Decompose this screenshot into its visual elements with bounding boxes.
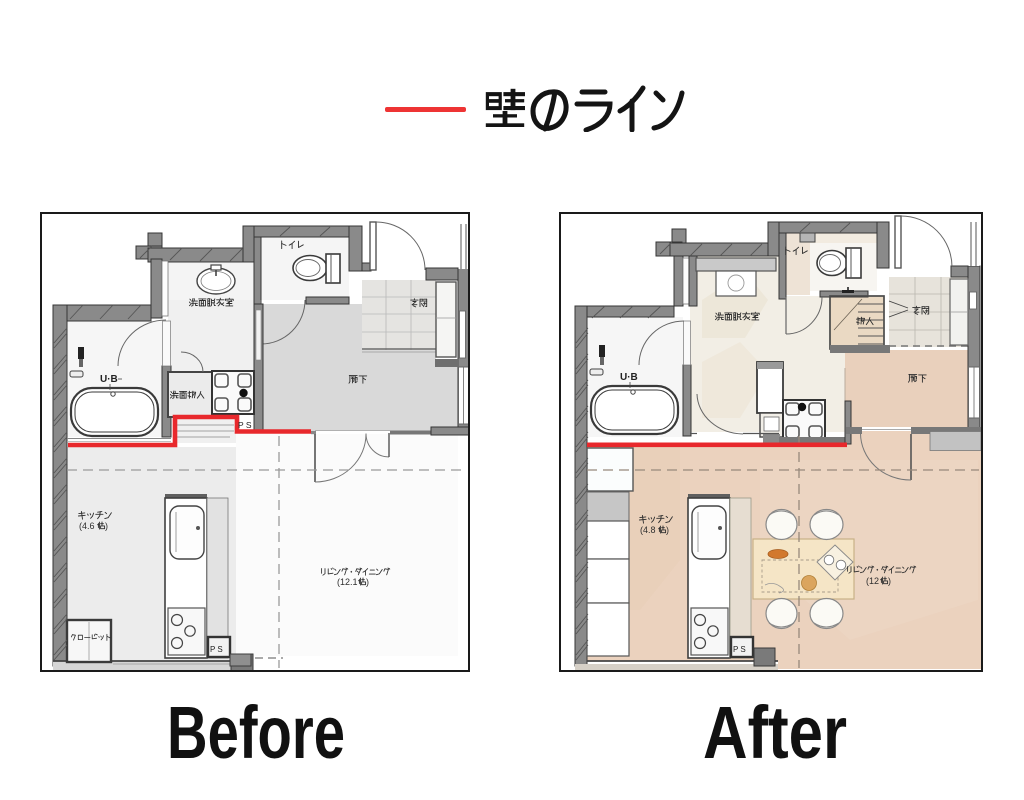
svg-text:(4.6: (4.6 — [79, 521, 95, 531]
svg-text:(4.8: (4.8 — [640, 525, 656, 535]
svg-text:P S: P S — [210, 645, 223, 654]
svg-text:): ) — [888, 576, 891, 586]
svg-text:P S: P S — [238, 420, 252, 430]
svg-text:(12.1: (12.1 — [337, 577, 358, 587]
svg-text:): ) — [105, 521, 108, 531]
svg-text:U·B: U·B — [100, 374, 118, 385]
svg-text:): ) — [366, 577, 369, 587]
svg-text:P S: P S — [733, 645, 746, 654]
svg-text:): ) — [666, 525, 669, 535]
svg-text:Before: Before — [167, 691, 345, 774]
svg-text:U·B: U·B — [620, 372, 638, 383]
svg-text:(12: (12 — [866, 576, 879, 586]
svg-text:After: After — [703, 691, 847, 774]
